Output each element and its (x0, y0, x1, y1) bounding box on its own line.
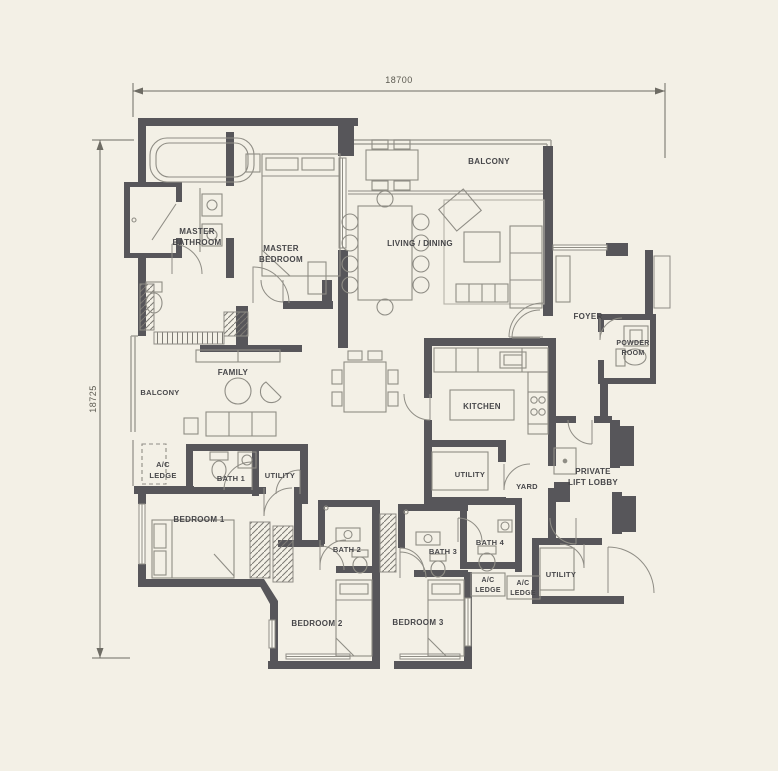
label-ac-ledge-mid2-1: A/C (517, 580, 530, 587)
label-bath3: BATH 3 (429, 547, 457, 556)
door-kitchen-top (512, 310, 540, 338)
label-yard: YARD (516, 482, 538, 491)
stove (528, 392, 548, 424)
label-utility-lobby: UTILITY (546, 570, 576, 579)
console-table (556, 256, 570, 302)
sofa-living (510, 226, 542, 308)
label-utility-kitchen: UTILITY (455, 470, 485, 479)
bed-2 (336, 580, 372, 656)
yard-washer (554, 448, 576, 474)
walls (124, 118, 656, 669)
label-balcony-top: BALCONY (468, 157, 510, 166)
label-lift-lobby-2: LIFT LOBBY (568, 478, 618, 487)
label-family: FAMILY (218, 368, 249, 377)
label-bedroom1: BEDROOM 1 (173, 515, 224, 524)
living-rug (444, 200, 544, 304)
label-living-dining: LIVING / DINING (387, 239, 453, 248)
label-ac-ledge-mid2-2: LEDGE (510, 590, 536, 597)
label-bath4: BATH 4 (476, 538, 505, 547)
label-powder-room-1: POWDER (616, 340, 649, 347)
label-kitchen: KITCHEN (463, 402, 501, 411)
label-master-bathroom-2: BATHROOM (173, 238, 222, 247)
bath3-fixtures (404, 510, 446, 577)
label-lift-lobby-1: PRIVATE (575, 467, 611, 476)
label-bath2: BATH 2 (333, 545, 361, 554)
shower-stall (132, 204, 176, 240)
floor-plan-canvas: 18700 18725 (0, 0, 778, 771)
label-bath1: BATH 1 (217, 474, 245, 483)
door-master-bedroom (253, 267, 289, 303)
bathtub (150, 138, 254, 182)
breakfast-table (332, 351, 398, 412)
label-master-bedroom-1: MASTER (263, 244, 299, 253)
sofa-family (184, 412, 276, 436)
fan-chair (260, 382, 281, 403)
bed-master (246, 154, 340, 294)
door-bedroom1 (264, 488, 292, 516)
door-lobby-entry (608, 547, 654, 593)
door-bath3 (400, 548, 424, 572)
label-ac-ledge-left-2: LEDGE (149, 471, 176, 480)
label-balcony-left: BALCONY (140, 388, 179, 397)
utility-lobby-shelf (540, 548, 574, 590)
door-corridor (261, 280, 283, 302)
door-foyer-lobby (568, 420, 592, 444)
wardrobes (140, 284, 396, 582)
dining-table (342, 191, 429, 315)
floor-plan: 18700 18725 (0, 0, 778, 771)
label-master-bathroom-1: MASTER (179, 227, 215, 236)
dimension-height-label: 18725 (88, 385, 98, 413)
label-foyer: FOYER (573, 312, 602, 321)
bed-1 (152, 520, 234, 578)
round-table (225, 378, 251, 404)
label-bedroom3: BEDROOM 3 (392, 618, 443, 627)
label-utility-family: UTILITY (265, 471, 295, 480)
label-ac-ledge-left-1: A/C (156, 460, 170, 469)
coffee-table (464, 232, 500, 262)
outdoor-table (366, 140, 418, 190)
label-master-bedroom-2: BEDROOM (259, 255, 303, 264)
label-powder-room-2: ROOM (622, 350, 645, 357)
kitchen-counter (434, 348, 548, 434)
label-bedroom2: BEDROOM 2 (291, 619, 342, 628)
armchair (439, 189, 482, 231)
dimension-width-label: 18700 (385, 75, 413, 85)
label-ac-ledge-mid1-1: A/C (482, 577, 495, 584)
label-ac-ledge-mid1-2: LEDGE (475, 587, 501, 594)
tv-bench-living (456, 284, 508, 302)
